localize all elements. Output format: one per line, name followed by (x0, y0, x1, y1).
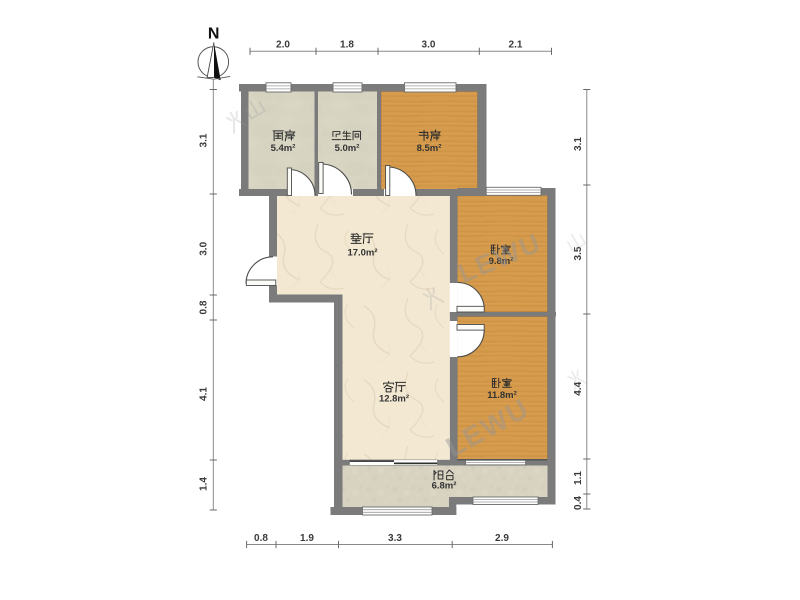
svg-text:12.8m²: 12.8m² (379, 394, 409, 405)
svg-text:4.1: 4.1 (199, 387, 210, 401)
svg-text:5.4m²: 5.4m² (271, 143, 296, 154)
svg-text:17.0m²: 17.0m² (347, 248, 377, 259)
svg-text:3.1: 3.1 (199, 133, 210, 147)
svg-text:3.3: 3.3 (388, 533, 402, 544)
svg-text:3.0: 3.0 (199, 241, 210, 255)
svg-text:3.0: 3.0 (422, 40, 436, 51)
svg-text:6.8m²: 6.8m² (432, 481, 457, 492)
svg-text:8.5m²: 8.5m² (417, 143, 442, 154)
svg-text:1.4: 1.4 (199, 477, 210, 491)
svg-text:0.8: 0.8 (199, 300, 210, 314)
svg-text:0.8: 0.8 (254, 533, 268, 544)
svg-text:1.8: 1.8 (340, 40, 354, 51)
svg-text:3.1: 3.1 (573, 137, 584, 151)
svg-text:1.1: 1.1 (573, 471, 584, 485)
svg-text:2.0: 2.0 (276, 40, 290, 51)
svg-text:0.4: 0.4 (573, 496, 584, 510)
svg-text:2.1: 2.1 (509, 40, 523, 51)
svg-text:1.9: 1.9 (300, 533, 314, 544)
svg-text:2.9: 2.9 (495, 533, 509, 544)
svg-text:N: N (208, 26, 220, 43)
svg-text:5.0m²: 5.0m² (335, 143, 360, 154)
